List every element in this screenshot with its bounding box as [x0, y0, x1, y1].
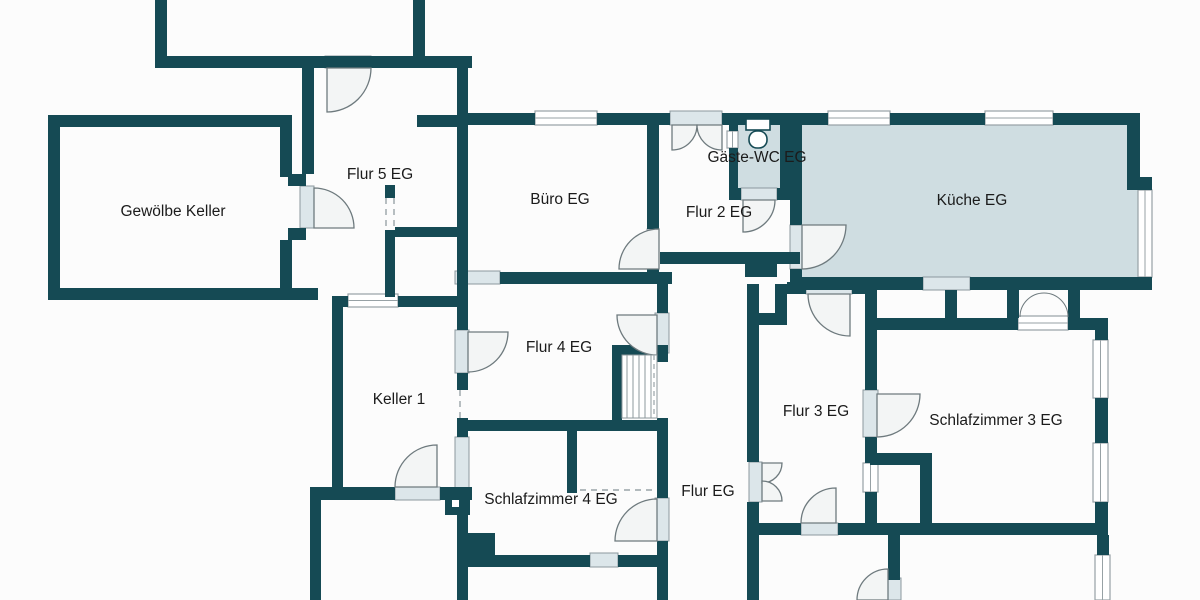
wall [1097, 535, 1109, 555]
room-label-buero-eg: Büro EG [530, 191, 589, 208]
wall [457, 113, 468, 284]
casement-arc [1044, 293, 1068, 317]
wall [465, 113, 535, 125]
wall [838, 523, 1108, 535]
wall [888, 535, 900, 580]
room-label-flur-2-eg: Flur 2 EG [686, 204, 752, 221]
wall [500, 272, 672, 284]
toilet-bowl-icon [749, 131, 767, 148]
wall [612, 352, 622, 427]
door-sill [923, 277, 970, 290]
wall-inset-dot [452, 500, 459, 507]
wall [288, 228, 306, 240]
door-swing-arc [697, 125, 722, 150]
door-swing-arc [877, 394, 920, 437]
wall [385, 230, 395, 297]
wall [865, 318, 1018, 330]
door-sill [395, 487, 440, 500]
wall [302, 68, 314, 174]
room-label-flur-3-eg: Flur 3 EG [783, 403, 849, 420]
wall [1095, 502, 1108, 535]
wall [890, 113, 985, 125]
room-label-flur-5-eg: Flur 5 EG [347, 166, 413, 183]
wall [1127, 177, 1152, 190]
wall [457, 418, 468, 437]
door-sill [741, 188, 777, 200]
wall [457, 373, 468, 390]
door-sill [670, 111, 722, 125]
wall [310, 500, 321, 600]
wall [413, 0, 425, 58]
wall [657, 541, 668, 600]
wall [747, 502, 759, 600]
door-swing-arc [468, 332, 508, 372]
door-swing-arc [327, 68, 371, 112]
wall [1053, 113, 1138, 125]
wall [945, 290, 957, 318]
wall [865, 284, 877, 390]
door-swing-arc [801, 488, 836, 523]
door-swing-arc [808, 294, 850, 336]
wall [657, 284, 668, 313]
wall [618, 555, 668, 567]
wall [777, 252, 800, 264]
door-swing-arc [314, 188, 354, 228]
wall [777, 188, 792, 200]
door-swing-arc [615, 499, 657, 541]
door-sill [590, 553, 618, 567]
wall [48, 115, 292, 127]
wall [1095, 398, 1108, 443]
wall [790, 113, 802, 225]
door-sill [801, 523, 838, 535]
room-label-gewoelbe-keller: Gewölbe Keller [120, 203, 225, 220]
wall [1127, 113, 1140, 177]
room-label-schlafzimmer-3-eg: Schlafzimmer 3 EG [929, 412, 1063, 429]
wall [1068, 290, 1080, 318]
wall [48, 288, 318, 300]
floorplan-svg: Gewölbe KellerFlur 5 EGBüro EGGäste-WC E… [0, 0, 1200, 600]
room-label-keller-1: Keller 1 [373, 391, 426, 408]
door-sill [863, 390, 878, 437]
door-swing-arc [762, 463, 782, 483]
wall [457, 56, 468, 116]
room-label-schlafzimmer-4-eg: Schlafzimmer 4 EG [484, 491, 618, 508]
wall [1095, 318, 1108, 340]
wall [920, 465, 932, 523]
wall [747, 284, 759, 462]
wall [865, 492, 877, 523]
door-sill [455, 437, 469, 490]
floorplan: Gewölbe KellerFlur 5 EGBüro EGGäste-WC E… [0, 0, 1200, 600]
door-swing-arc [619, 229, 659, 269]
wall [729, 188, 741, 200]
wall [457, 420, 668, 431]
wall [647, 113, 659, 229]
wall [457, 284, 468, 330]
room-label-flur-eg: Flur EG [681, 483, 734, 500]
wall [332, 296, 343, 491]
wall [48, 115, 60, 300]
room-label-flur-4-eg: Flur 4 EG [526, 339, 592, 356]
room-label-kueche-eg: Küche EG [937, 192, 1008, 209]
wall [729, 118, 738, 131]
wall [970, 277, 1152, 290]
wall [775, 284, 787, 325]
door-swing-arc [395, 445, 437, 487]
wall [745, 252, 777, 277]
wall [288, 174, 306, 186]
door-swing-arc [857, 569, 888, 600]
wall [660, 252, 745, 264]
wall [787, 282, 806, 294]
wall [457, 555, 590, 567]
wall [747, 523, 801, 535]
wall [385, 185, 395, 198]
wall [597, 113, 670, 125]
room-label-gaeste-wc-eg: Gäste-WC EG [707, 149, 806, 166]
wall [870, 453, 932, 465]
wall [1007, 290, 1019, 318]
wall [280, 240, 292, 300]
wall [395, 227, 460, 237]
wall [310, 487, 395, 500]
wall [567, 420, 577, 493]
toilet-tank-icon [746, 119, 770, 130]
door-swing-arc [762, 481, 782, 501]
door-swing-arc [672, 125, 697, 150]
wall [280, 115, 292, 177]
door-sill [749, 462, 762, 502]
door-sill [455, 330, 469, 373]
wall [465, 533, 495, 555]
door-sill [300, 186, 314, 228]
casement-arc [1020, 293, 1044, 317]
